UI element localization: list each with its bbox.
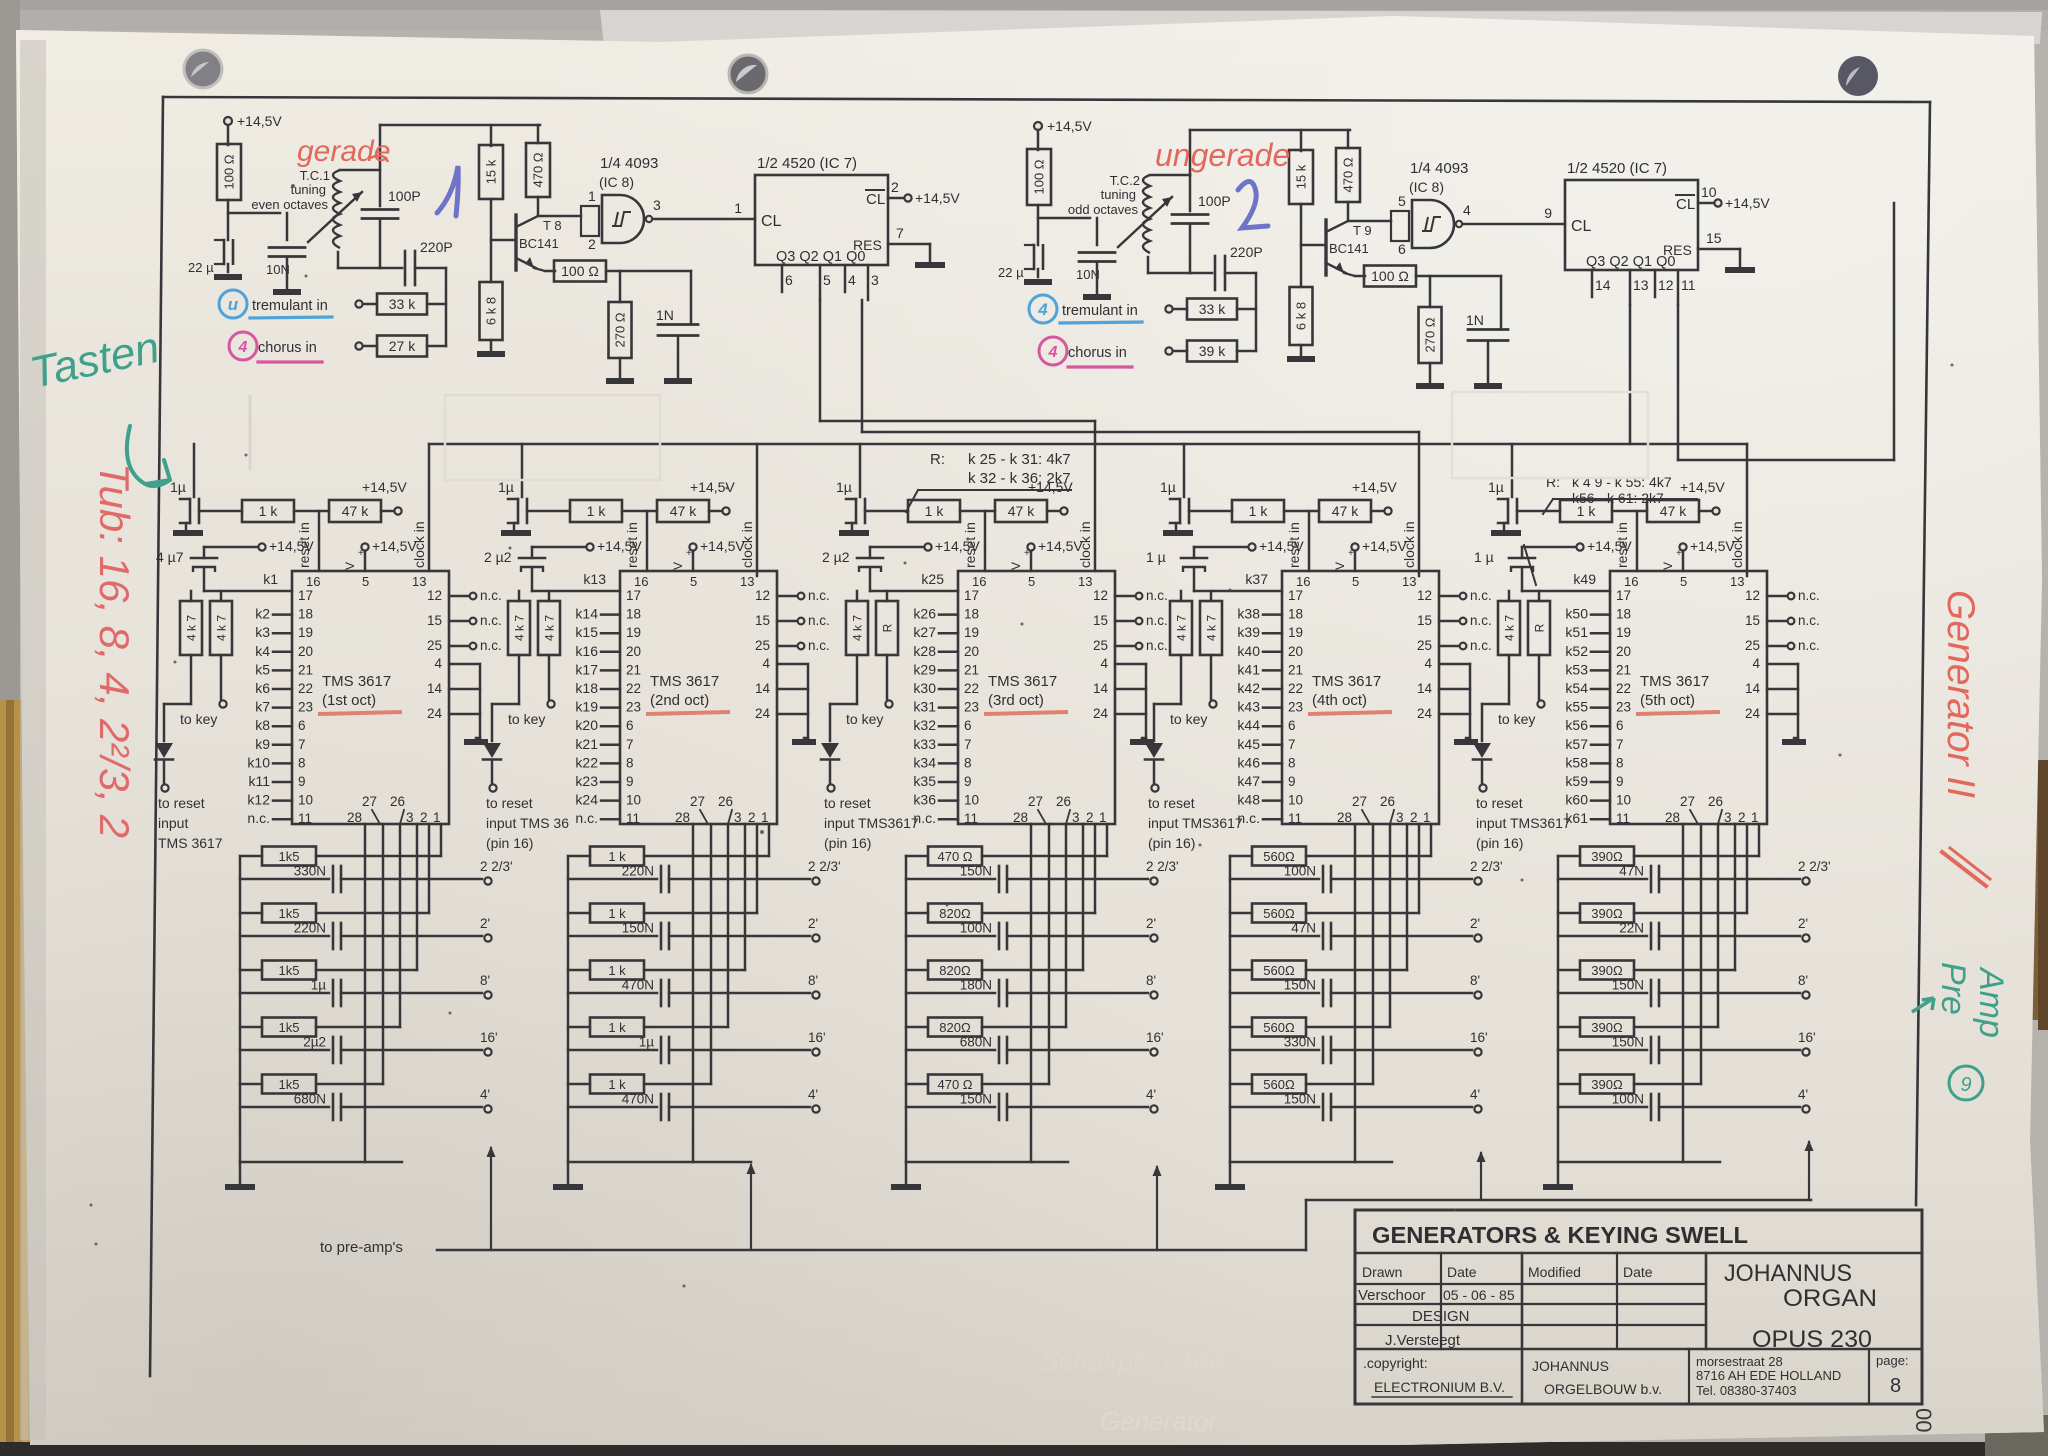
- svg-text:Ich bin Ja: Ich bin Ja: [1030, 1275, 1150, 1306]
- svg-text:24: 24: [1417, 706, 1433, 721]
- svg-text:25: 25: [755, 638, 770, 653]
- svg-text:k23: k23: [575, 773, 598, 789]
- svg-text:100P: 100P: [1198, 193, 1231, 209]
- svg-text:k9: k9: [255, 736, 270, 752]
- svg-text:270 Ω: 270 Ω: [613, 312, 628, 347]
- svg-text:6: 6: [785, 272, 793, 288]
- svg-text:V: V: [1661, 562, 1675, 570]
- svg-text:470N: 470N: [622, 978, 654, 993]
- svg-text:6 k 8: 6 k 8: [1294, 302, 1309, 330]
- svg-text:1N: 1N: [1466, 312, 1484, 328]
- svg-text:n.c.: n.c.: [1798, 638, 1820, 653]
- svg-text:k18: k18: [575, 680, 598, 696]
- svg-text:560Ω: 560Ω: [1263, 906, 1295, 921]
- svg-text:T.C.2: T.C.2: [1110, 173, 1140, 188]
- svg-text:12: 12: [1745, 588, 1760, 603]
- svg-text:T.C.1: T.C.1: [300, 168, 330, 183]
- svg-text:+14,5V: +14,5V: [1587, 538, 1632, 554]
- svg-text:26: 26: [1380, 794, 1395, 809]
- svg-text:1 k: 1 k: [608, 963, 626, 978]
- svg-text:220P: 220P: [420, 239, 453, 255]
- svg-text:12: 12: [427, 588, 442, 603]
- svg-text:+: +: [1676, 548, 1682, 559]
- svg-text:20: 20: [298, 644, 313, 659]
- svg-text:+14,5V: +14,5V: [1680, 479, 1725, 495]
- svg-text:n.c.: n.c.: [247, 810, 270, 826]
- svg-text:5: 5: [690, 574, 697, 589]
- svg-text:390Ω: 390Ω: [1591, 963, 1623, 978]
- svg-text:CL: CL: [1571, 218, 1592, 235]
- svg-text:1/4 4093: 1/4 4093: [600, 155, 658, 172]
- svg-text:2: 2: [1410, 810, 1418, 825]
- svg-text:n.c.: n.c.: [1798, 588, 1820, 603]
- svg-text:k43: k43: [1237, 699, 1260, 715]
- svg-text:Tel. 08380-37403: Tel. 08380-37403: [1696, 1383, 1796, 1398]
- svg-text:150N: 150N: [1284, 978, 1316, 993]
- svg-text:+14,5V: +14,5V: [372, 538, 417, 554]
- svg-text:2 2/3': 2 2/3': [480, 859, 513, 874]
- svg-text:n.c.: n.c.: [1470, 638, 1492, 653]
- svg-text:k3: k3: [255, 624, 270, 640]
- svg-text:+14,5V: +14,5V: [935, 538, 980, 554]
- svg-text:14: 14: [1417, 681, 1433, 696]
- svg-text:8': 8': [480, 973, 490, 988]
- svg-text:2 µ2: 2 µ2: [822, 549, 850, 565]
- svg-text:10: 10: [1616, 793, 1631, 808]
- svg-text:680N: 680N: [960, 1035, 992, 1050]
- svg-text:(2nd oct): (2nd oct): [650, 692, 709, 709]
- svg-text:4': 4': [1798, 1087, 1808, 1102]
- svg-text:n.c.: n.c.: [808, 613, 830, 628]
- svg-text:k46: k46: [1237, 754, 1260, 770]
- svg-text:4 µ7: 4 µ7: [156, 549, 184, 565]
- svg-text:19: 19: [1288, 625, 1303, 640]
- svg-text:CL: CL: [761, 213, 782, 230]
- svg-text:8: 8: [1616, 755, 1624, 770]
- svg-text:13: 13: [1730, 574, 1744, 589]
- svg-text:k 25 - k 31: 4k7: k 25 - k 31: 4k7: [968, 451, 1071, 468]
- svg-text:28: 28: [1013, 810, 1028, 825]
- svg-text:5: 5: [1680, 574, 1687, 589]
- svg-text:k 4 9 - k 55: 4k7: k 4 9 - k 55: 4k7: [1572, 474, 1672, 490]
- svg-text:to reset: to reset: [824, 795, 871, 811]
- svg-text:TMS 3617: TMS 3617: [158, 835, 223, 851]
- svg-text:24: 24: [427, 706, 443, 721]
- svg-text:R: R: [1533, 623, 1547, 632]
- svg-text:23: 23: [626, 700, 641, 715]
- svg-text:20: 20: [1616, 644, 1631, 659]
- svg-text:page:: page:: [1876, 1353, 1909, 1368]
- svg-text:8: 8: [1288, 755, 1296, 770]
- svg-text:10: 10: [1701, 184, 1717, 200]
- svg-text:+: +: [686, 548, 692, 559]
- svg-text:13: 13: [1402, 574, 1416, 589]
- svg-text:JOHANNUS: JOHANNUS: [1724, 1260, 1852, 1287]
- svg-text:tuning: tuning: [1101, 187, 1136, 202]
- svg-text:4 k 7: 4 k 7: [185, 615, 199, 641]
- svg-text:even octaves: even octaves: [251, 197, 328, 212]
- svg-text:n.c.: n.c.: [480, 613, 502, 628]
- svg-text:(pin 16): (pin 16): [1148, 835, 1195, 851]
- svg-text:2 2/3': 2 2/3': [1146, 859, 1179, 874]
- svg-text:12: 12: [1093, 588, 1108, 603]
- svg-text:9: 9: [626, 774, 634, 789]
- svg-text:14: 14: [427, 681, 443, 696]
- svg-text:19: 19: [1616, 625, 1631, 640]
- svg-text:21: 21: [626, 662, 641, 677]
- svg-text:150N: 150N: [960, 1092, 992, 1107]
- svg-text:16: 16: [634, 574, 648, 589]
- svg-text:820Ω: 820Ω: [939, 906, 971, 921]
- svg-text:17: 17: [1288, 588, 1303, 603]
- svg-text:+: +: [1024, 548, 1030, 559]
- svg-text:ELECTRONIUM B.V.: ELECTRONIUM B.V.: [1374, 1379, 1505, 1395]
- svg-text:k31: k31: [913, 699, 936, 715]
- svg-text:47N: 47N: [1291, 921, 1316, 936]
- svg-text:47 k: 47 k: [342, 503, 369, 519]
- svg-text:Verschoor: Verschoor: [1358, 1287, 1426, 1304]
- svg-text:k40: k40: [1237, 643, 1260, 659]
- svg-text:k11: k11: [248, 773, 270, 789]
- svg-text:k53: k53: [1565, 661, 1588, 677]
- svg-text:1/4 4093: 1/4 4093: [1410, 160, 1468, 177]
- svg-text:21: 21: [964, 662, 979, 677]
- svg-text:22 µ: 22 µ: [998, 265, 1024, 280]
- svg-text:10: 10: [1288, 793, 1303, 808]
- svg-text:6: 6: [626, 718, 634, 733]
- svg-text:to key: to key: [508, 711, 545, 727]
- svg-text:n.c.: n.c.: [1146, 588, 1168, 603]
- svg-text:4: 4: [238, 339, 248, 356]
- svg-text:+14,5V: +14,5V: [915, 190, 960, 206]
- svg-text:47 k: 47 k: [1008, 503, 1035, 519]
- svg-text:k57: k57: [1565, 736, 1588, 752]
- svg-text:n.c.: n.c.: [575, 810, 598, 826]
- svg-text:28: 28: [347, 810, 362, 825]
- svg-text:k8: k8: [255, 717, 270, 733]
- svg-text:2': 2': [1798, 916, 1808, 931]
- svg-text:6: 6: [1616, 718, 1624, 733]
- svg-text:9: 9: [298, 774, 306, 789]
- svg-text:Date: Date: [1447, 1264, 1477, 1280]
- svg-text:7: 7: [964, 737, 972, 752]
- svg-text:k60: k60: [1565, 792, 1588, 808]
- svg-text:4 k 7: 4 k 7: [1205, 615, 1219, 641]
- svg-text:1 k: 1 k: [608, 1020, 626, 1035]
- svg-text:15: 15: [1417, 613, 1432, 628]
- svg-text:2': 2': [1470, 916, 1480, 931]
- svg-text:1: 1: [761, 810, 769, 825]
- svg-text:BC141: BC141: [1329, 241, 1369, 256]
- svg-text:4: 4: [1463, 202, 1471, 218]
- svg-text:17: 17: [298, 588, 313, 603]
- svg-text:R:: R:: [930, 451, 945, 468]
- svg-text:+14,5V: +14,5V: [237, 113, 282, 129]
- svg-text:4': 4': [480, 1087, 490, 1102]
- svg-text:20: 20: [626, 644, 641, 659]
- svg-text:5: 5: [1028, 574, 1035, 589]
- svg-text:7: 7: [1288, 737, 1296, 752]
- svg-text:k38: k38: [1237, 606, 1260, 622]
- svg-text:1: 1: [1099, 810, 1107, 825]
- svg-text:150N: 150N: [1612, 1035, 1644, 1050]
- svg-text:18: 18: [964, 607, 979, 622]
- svg-text:u: u: [228, 295, 239, 314]
- svg-text:150N: 150N: [1612, 978, 1644, 993]
- svg-text:2 2/3': 2 2/3': [1470, 859, 1503, 874]
- svg-text:chorus in: chorus in: [258, 340, 317, 356]
- svg-text:17: 17: [1616, 588, 1631, 603]
- svg-text:k24: k24: [575, 792, 598, 808]
- svg-text:k54: k54: [1565, 680, 1588, 696]
- svg-text:(pin 16): (pin 16): [824, 835, 871, 851]
- svg-text:(4th oct): (4th oct): [1312, 692, 1367, 709]
- svg-text:6: 6: [964, 718, 972, 733]
- svg-text:10: 10: [626, 793, 641, 808]
- svg-text:4: 4: [1100, 656, 1108, 671]
- svg-text:4 k 7: 4 k 7: [543, 615, 557, 641]
- svg-text:3: 3: [1396, 810, 1404, 825]
- svg-text:(3rd oct): (3rd oct): [988, 692, 1044, 709]
- svg-text:33 k: 33 k: [389, 296, 416, 312]
- svg-text:05 - 06 - 85: 05 - 06 - 85: [1443, 1287, 1515, 1303]
- svg-text:15 k: 15 k: [484, 159, 499, 184]
- svg-text:k16: k16: [575, 643, 598, 659]
- svg-text:11: 11: [1288, 811, 1302, 826]
- svg-text:Generator: Generator: [1100, 1406, 1218, 1436]
- svg-text:180N: 180N: [960, 978, 992, 993]
- svg-text:16': 16': [480, 1030, 498, 1045]
- svg-text:to reset: to reset: [1476, 795, 1523, 811]
- svg-text:27: 27: [362, 794, 377, 809]
- svg-text:tremulant in: tremulant in: [252, 298, 328, 314]
- svg-text:2: 2: [420, 810, 428, 825]
- svg-text:to key: to key: [1170, 711, 1207, 727]
- svg-text:00: 00: [1911, 1408, 1936, 1432]
- svg-text:Generator II: Generator II: [1939, 590, 1982, 798]
- svg-text:5: 5: [823, 272, 831, 288]
- svg-text:33 k: 33 k: [1199, 301, 1226, 317]
- svg-text:k37: k37: [1245, 571, 1268, 587]
- svg-text:Tub: 16, 8, 4, 2²/3, 2: Tub: 16, 8, 4, 2²/3, 2: [91, 463, 138, 838]
- svg-text:1: 1: [1423, 810, 1431, 825]
- svg-text:17: 17: [964, 588, 979, 603]
- svg-text:15: 15: [1093, 613, 1108, 628]
- svg-text:21: 21: [298, 662, 313, 677]
- svg-text:25: 25: [1093, 638, 1108, 653]
- svg-text:k56: k56: [1565, 717, 1588, 733]
- svg-text:k5: k5: [255, 661, 270, 677]
- svg-text:gerade: gerade: [297, 135, 390, 168]
- svg-text:k49: k49: [1573, 571, 1596, 587]
- svg-text:Q3 Q2 Q1 Q0: Q3 Q2 Q1 Q0: [1586, 254, 1675, 270]
- svg-text:DESIGN: DESIGN: [1412, 1308, 1470, 1325]
- svg-text:470N: 470N: [622, 1092, 654, 1107]
- svg-text:22: 22: [626, 681, 641, 696]
- svg-text:4: 4: [848, 272, 856, 288]
- svg-text:ORGELBOUW b.v.: ORGELBOUW b.v.: [1544, 1381, 1662, 1397]
- svg-text:2µ2: 2µ2: [303, 1035, 326, 1050]
- svg-text:Modified: Modified: [1528, 1264, 1581, 1280]
- svg-text:k1: k1: [263, 571, 278, 587]
- svg-text:1: 1: [734, 200, 742, 216]
- svg-text:k58: k58: [1565, 754, 1588, 770]
- svg-text:22: 22: [298, 681, 313, 696]
- svg-text:k26: k26: [913, 606, 936, 622]
- svg-text:22N: 22N: [1619, 921, 1644, 936]
- svg-text:16: 16: [1624, 574, 1638, 589]
- svg-text:+14,5V: +14,5V: [1047, 118, 1092, 134]
- svg-text:19: 19: [298, 625, 313, 640]
- svg-text:4: 4: [1424, 656, 1432, 671]
- svg-text:1 k: 1 k: [608, 849, 626, 864]
- svg-text:1 k: 1 k: [608, 1077, 626, 1092]
- svg-text:47N: 47N: [1619, 864, 1644, 879]
- svg-text:16: 16: [972, 574, 986, 589]
- svg-text:n.c.: n.c.: [1798, 613, 1820, 628]
- svg-text:to key: to key: [846, 711, 883, 727]
- svg-text:4: 4: [1048, 344, 1058, 361]
- svg-text:560Ω: 560Ω: [1263, 963, 1295, 978]
- svg-text:220N: 220N: [622, 864, 654, 879]
- svg-text:100P: 100P: [388, 188, 421, 204]
- svg-text:220N: 220N: [294, 921, 326, 936]
- svg-text:8': 8': [1146, 973, 1156, 988]
- svg-text:11: 11: [1681, 277, 1696, 293]
- svg-text:390Ω: 390Ω: [1591, 1077, 1623, 1092]
- svg-text:39 k: 39 k: [1199, 343, 1226, 359]
- svg-text:tremulant in: tremulant in: [1062, 303, 1138, 319]
- svg-text:+14,5V: +14,5V: [1352, 479, 1397, 495]
- svg-text:k51: k51: [1565, 624, 1588, 640]
- svg-text:V: V: [1009, 562, 1023, 570]
- svg-text:R: R: [881, 623, 895, 632]
- svg-text:k34: k34: [913, 754, 936, 770]
- svg-text:3: 3: [871, 272, 879, 288]
- svg-text:ungerade: ungerade: [1155, 137, 1290, 173]
- svg-text:k32: k32: [913, 717, 936, 733]
- svg-text:9: 9: [1288, 774, 1296, 789]
- svg-text:24: 24: [755, 706, 771, 721]
- svg-text:1k5: 1k5: [279, 849, 300, 864]
- svg-text:k7: k7: [255, 699, 270, 715]
- svg-text:100 Ω: 100 Ω: [561, 263, 599, 279]
- svg-text:470 Ω: 470 Ω: [937, 849, 972, 864]
- svg-text:2: 2: [1086, 810, 1094, 825]
- svg-text:270 Ω: 270 Ω: [1423, 317, 1438, 352]
- svg-text:16': 16': [808, 1030, 826, 1045]
- svg-text:(pin 16): (pin 16): [486, 835, 533, 851]
- svg-text:390Ω: 390Ω: [1591, 906, 1623, 921]
- svg-text:1 k: 1 k: [608, 906, 626, 921]
- svg-text:CL: CL: [1676, 196, 1695, 213]
- svg-text:150N: 150N: [1284, 1092, 1316, 1107]
- svg-text:2: 2: [588, 236, 596, 252]
- svg-text:n.c.: n.c.: [480, 588, 502, 603]
- svg-text:(5th oct): (5th oct): [1640, 692, 1695, 709]
- svg-text:16: 16: [1296, 574, 1310, 589]
- svg-text:47 k: 47 k: [1332, 503, 1359, 519]
- svg-text:1: 1: [433, 810, 441, 825]
- svg-text:k33: k33: [913, 736, 936, 752]
- svg-text:k27: k27: [913, 624, 936, 640]
- svg-text:820Ω: 820Ω: [939, 1020, 971, 1035]
- svg-text:k19: k19: [575, 699, 598, 715]
- svg-text:14: 14: [1745, 681, 1761, 696]
- svg-text:+14,5V: +14,5V: [1690, 538, 1735, 554]
- svg-text:14: 14: [1093, 681, 1109, 696]
- svg-text:+14,5V: +14,5V: [700, 538, 745, 554]
- svg-text:4: 4: [434, 656, 442, 671]
- svg-text:1/2 4520 (IC 7): 1/2 4520 (IC 7): [1567, 160, 1667, 177]
- svg-text:8: 8: [298, 755, 306, 770]
- svg-text:47 k: 47 k: [1660, 503, 1687, 519]
- svg-text:+: +: [1348, 548, 1354, 559]
- svg-text:9: 9: [1616, 774, 1624, 789]
- svg-text:47 k: 47 k: [670, 503, 697, 519]
- svg-text:k14: k14: [575, 606, 598, 622]
- svg-text:13: 13: [1633, 277, 1649, 293]
- svg-text:+14,5V: +14,5V: [597, 538, 642, 554]
- svg-text:18: 18: [1616, 607, 1631, 622]
- svg-text:1 k: 1 k: [587, 503, 607, 519]
- svg-text:27: 27: [1680, 794, 1695, 809]
- svg-text:3: 3: [406, 810, 414, 825]
- svg-text:n.c.: n.c.: [1146, 638, 1168, 653]
- svg-text:4: 4: [1037, 300, 1048, 319]
- svg-text:3: 3: [1072, 810, 1080, 825]
- svg-text:k41: k41: [1237, 661, 1260, 677]
- svg-text:1 k: 1 k: [1249, 503, 1269, 519]
- svg-text:2 2/3': 2 2/3': [808, 859, 841, 874]
- svg-text:2: 2: [891, 179, 899, 195]
- svg-text:Drawn: Drawn: [1362, 1264, 1402, 1280]
- svg-text:ORGAN: ORGAN: [1783, 1285, 1877, 1312]
- svg-text:15: 15: [1706, 230, 1722, 246]
- svg-text:1µ: 1µ: [498, 479, 514, 495]
- svg-text:n.c.: n.c.: [1146, 613, 1168, 628]
- svg-text:input: input: [158, 815, 188, 831]
- svg-text:6: 6: [298, 718, 306, 733]
- svg-text:11: 11: [298, 811, 312, 826]
- svg-text:8716 AH EDE HOLLAND: 8716 AH EDE HOLLAND: [1696, 1368, 1841, 1383]
- svg-text:1k5: 1k5: [279, 906, 300, 921]
- svg-text:n.c.: n.c.: [1470, 613, 1492, 628]
- svg-text:V: V: [671, 562, 685, 570]
- svg-text:k20: k20: [575, 717, 598, 733]
- svg-text:25: 25: [427, 638, 442, 653]
- svg-text:k61: k61: [1565, 810, 1588, 826]
- svg-text:J.Versteegt: J.Versteegt: [1385, 1332, 1461, 1349]
- svg-text:18: 18: [1288, 607, 1303, 622]
- svg-text:Pre: Pre: [1934, 962, 1972, 1015]
- svg-text:+14,5V: +14,5V: [1259, 538, 1304, 554]
- svg-text:+14,5V: +14,5V: [1725, 195, 1770, 211]
- svg-text:k28: k28: [913, 643, 936, 659]
- svg-text:26: 26: [390, 794, 405, 809]
- svg-text:2: 2: [1738, 810, 1746, 825]
- svg-text:k59: k59: [1565, 773, 1588, 789]
- svg-text:11: 11: [626, 811, 640, 826]
- svg-text:16': 16': [1146, 1030, 1164, 1045]
- svg-text:V: V: [1333, 562, 1347, 570]
- svg-text:17: 17: [626, 588, 641, 603]
- svg-text:27: 27: [1028, 794, 1043, 809]
- svg-text:TMS 3617: TMS 3617: [1312, 673, 1381, 690]
- svg-text:k22: k22: [575, 754, 598, 770]
- svg-text:28: 28: [675, 810, 690, 825]
- svg-text:820Ω: 820Ω: [939, 963, 971, 978]
